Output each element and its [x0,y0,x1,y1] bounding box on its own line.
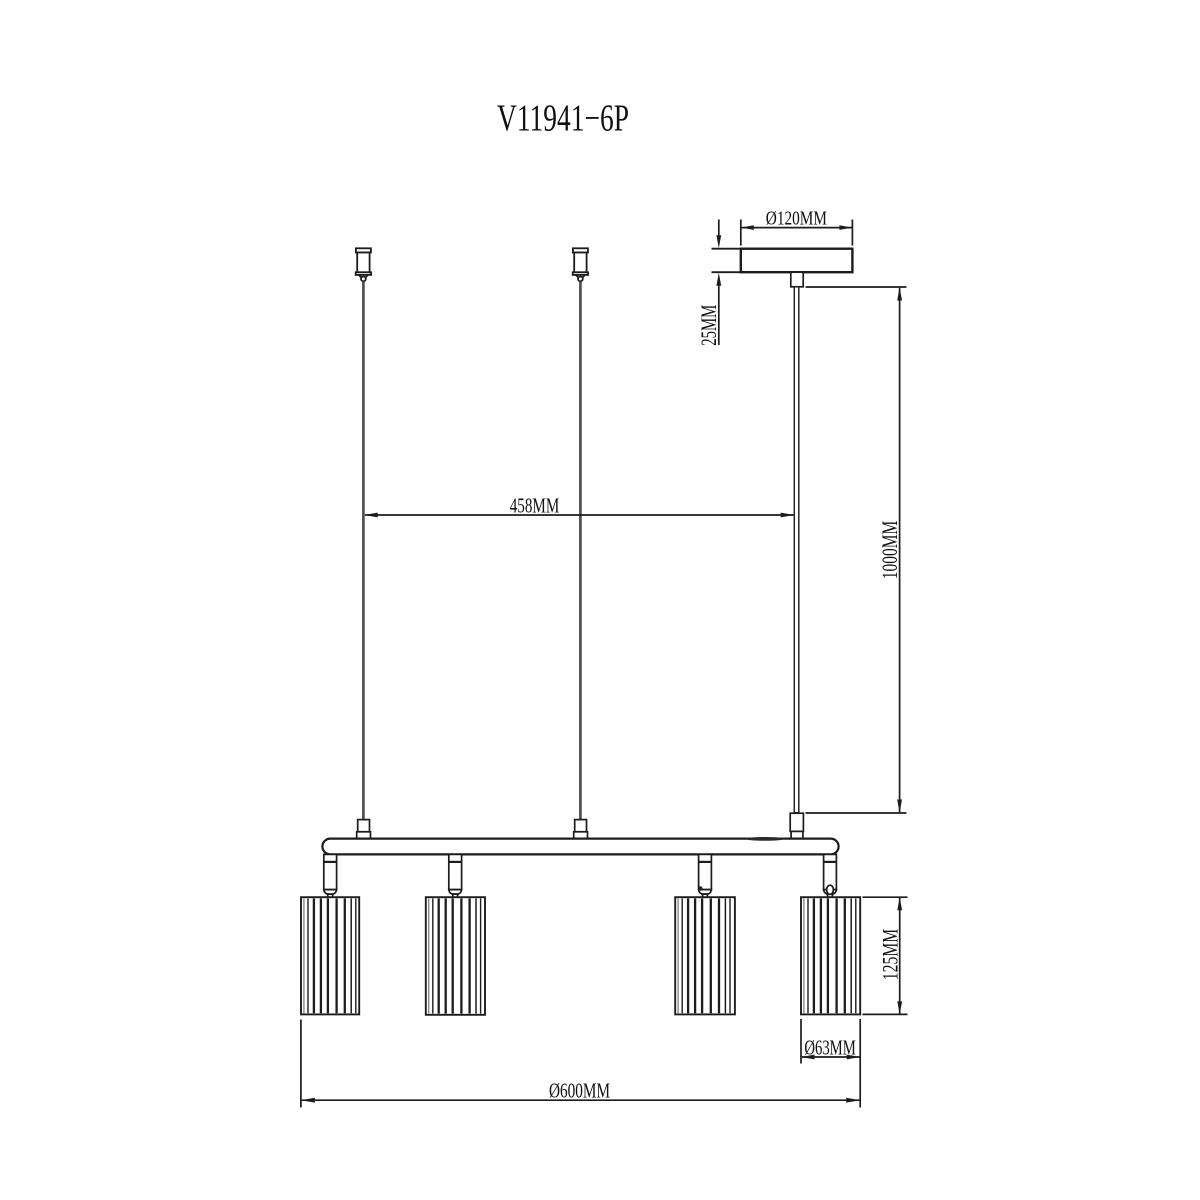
svg-text:V11941−6P: V11941−6P [497,98,629,140]
svg-text:125MM: 125MM [877,929,902,981]
svg-text:Ø120MM: Ø120MM [766,207,827,229]
svg-text:1000MM: 1000MM [877,521,902,580]
svg-text:Ø600MM: Ø600MM [549,1078,610,1102]
svg-text:25MM: 25MM [696,305,721,346]
svg-text:Ø63MM: Ø63MM [804,1035,856,1059]
svg-text:458MM: 458MM [510,494,560,518]
